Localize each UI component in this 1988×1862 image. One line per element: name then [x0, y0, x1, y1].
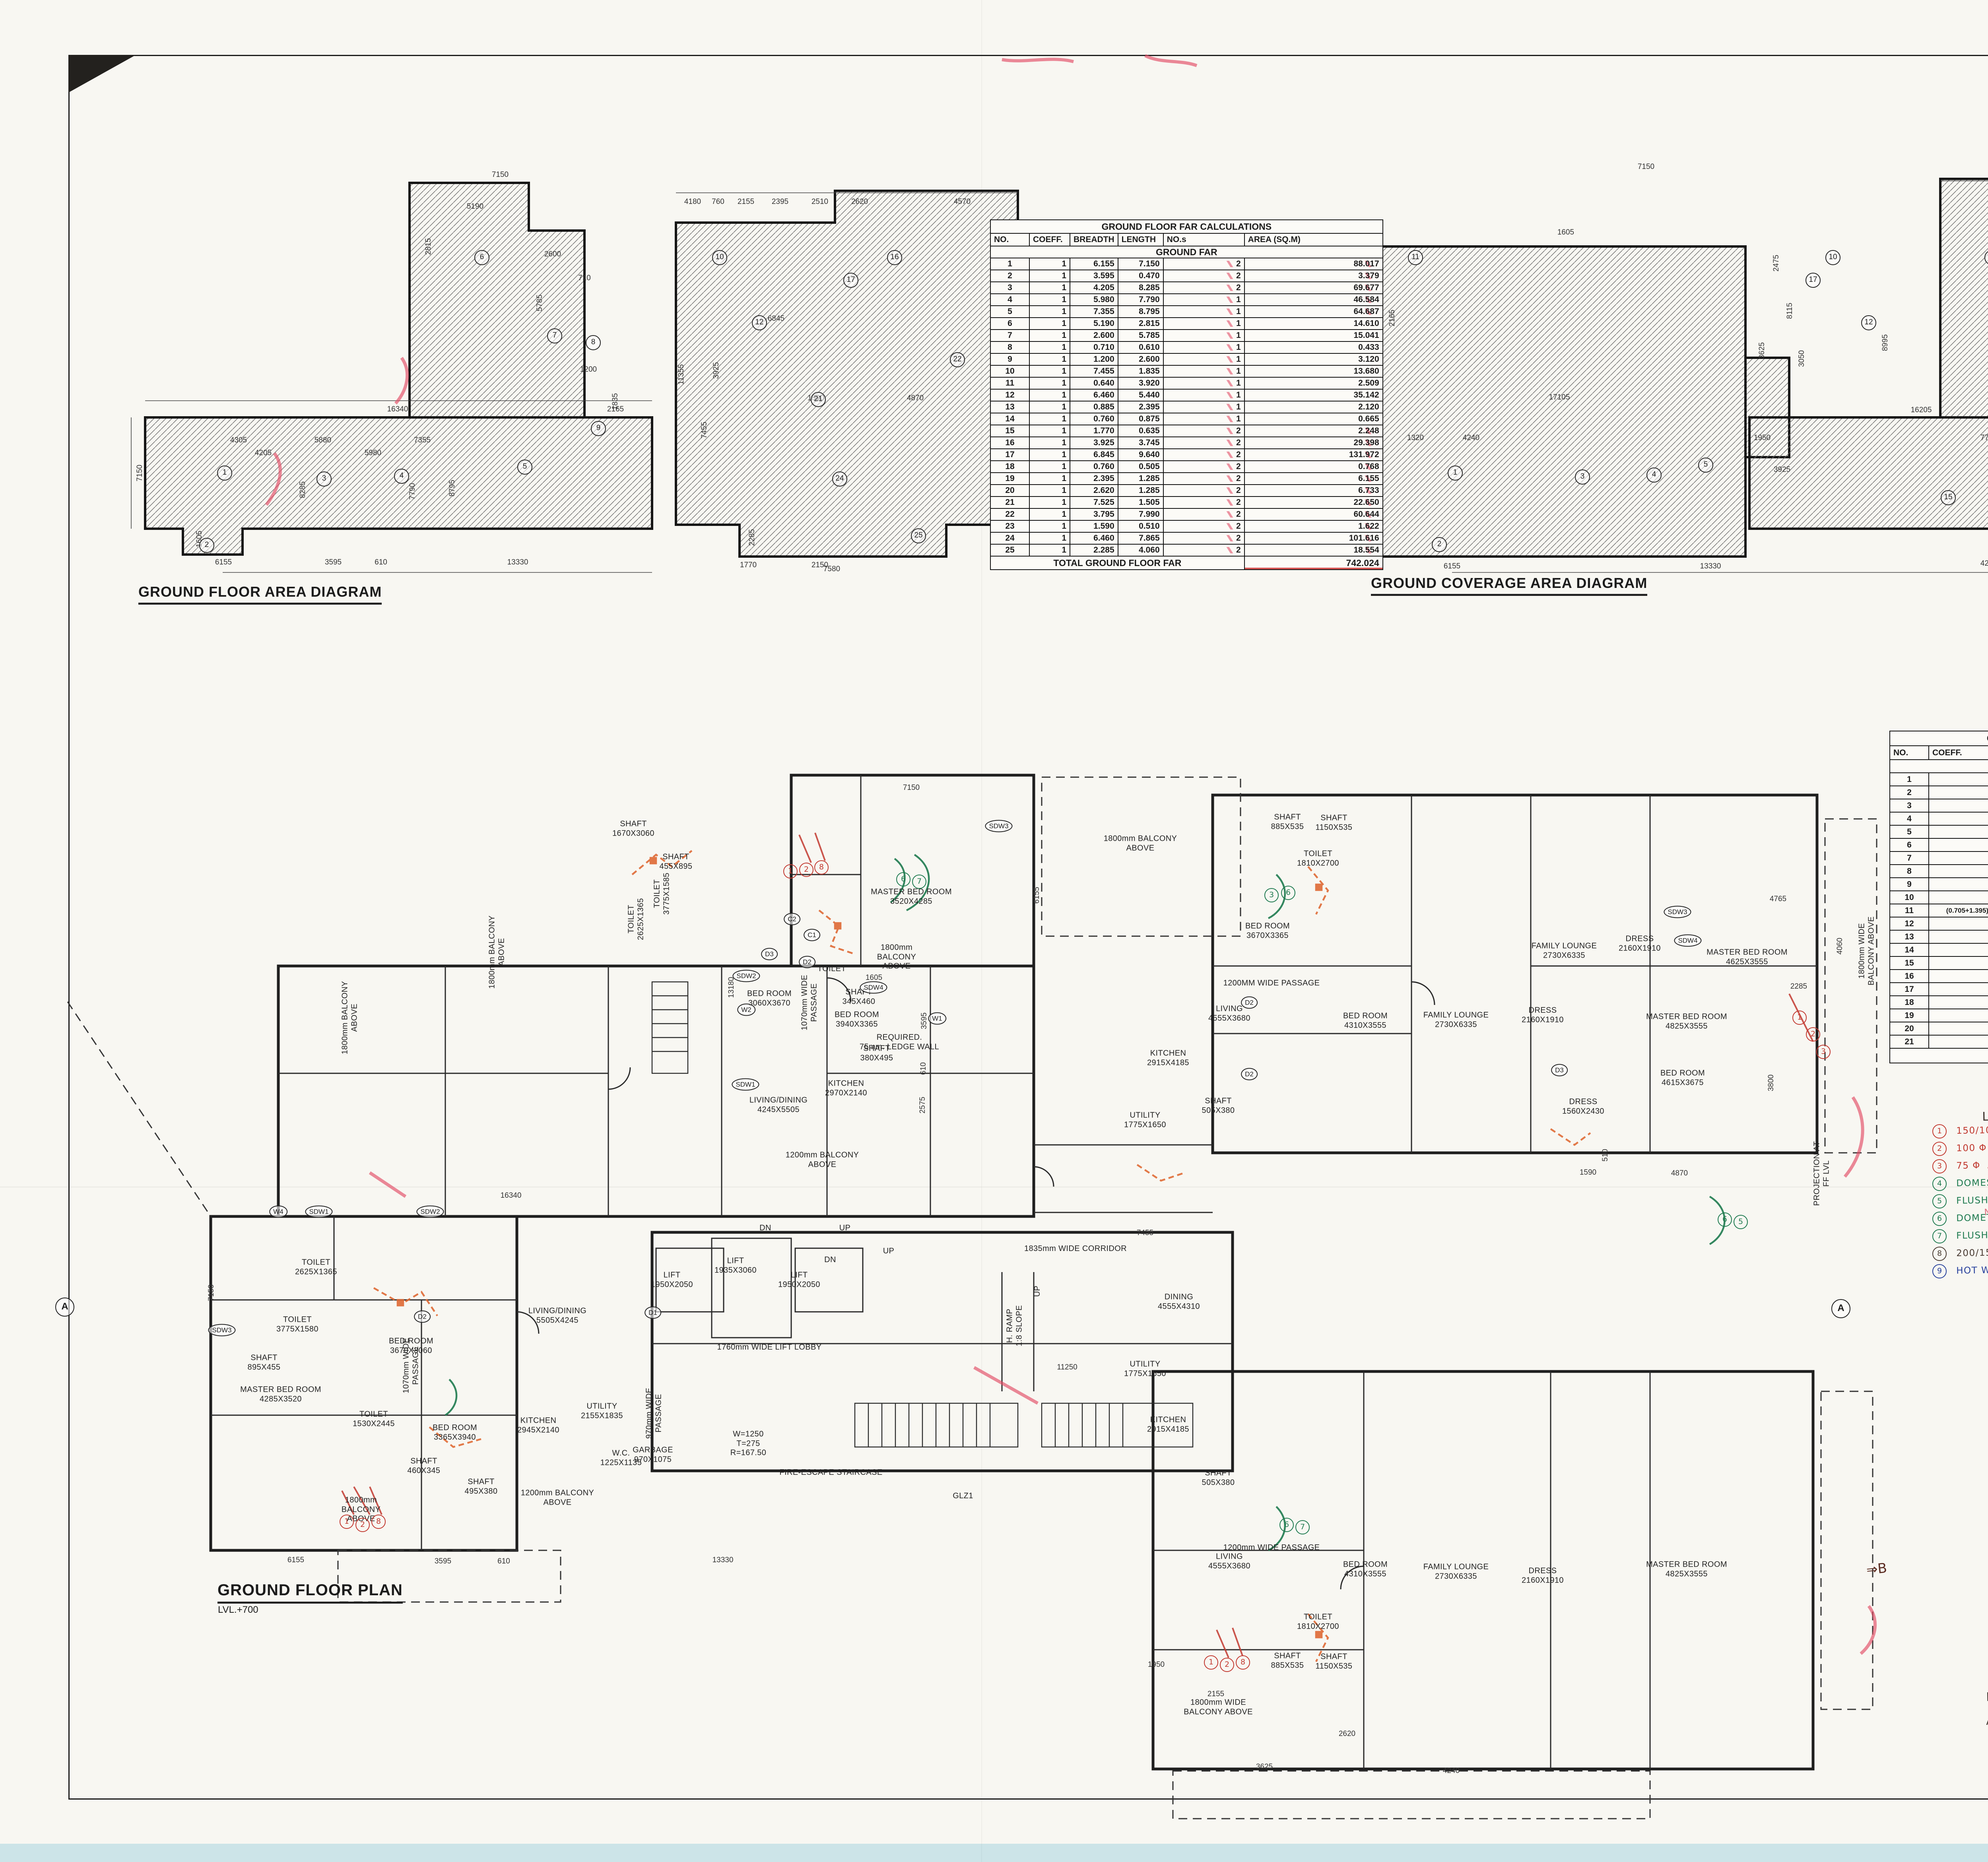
- table-row: 1017.4551.835113.680: [990, 365, 1383, 377]
- opening-tag: W2: [737, 1004, 755, 1016]
- room-label: KITCHEN 2945X2140: [517, 1416, 559, 1435]
- section-b-marker: ⇒B: [1866, 1560, 1888, 1578]
- room-label: DRESS 2160X1910: [1619, 934, 1661, 953]
- handwritten-circle-number: 8: [814, 860, 829, 875]
- room-label: FIRE-ESCAPE STAIRCASE: [779, 1468, 882, 1478]
- handwritten-circle-number: 7: [912, 875, 926, 889]
- table-row: 1216.4605.440135.142: [990, 389, 1383, 401]
- room-label: TOILET: [817, 964, 846, 974]
- coverage-dimension-label: 17105: [1549, 393, 1570, 402]
- legend-overwrite-note: Note - Ac: [1984, 1206, 1988, 1218]
- room-label: LIFT 1950X2050: [651, 1270, 693, 1289]
- room-label: 1070mm WIDE PASSAGE: [800, 975, 819, 1030]
- far-dimension-label: 2620: [851, 198, 868, 206]
- opening-tag: SDW1: [732, 1078, 759, 1091]
- room-label: KITCHEN 2915X4185: [1147, 1415, 1189, 1434]
- table-row: 810.7100.61010.433: [990, 341, 1383, 353]
- room-label: 1800mm BALCONY ABOVE: [487, 915, 506, 989]
- handwritten-circle-number: 1: [1792, 1011, 1807, 1025]
- room-label: TOILET 3775X1580: [276, 1315, 318, 1334]
- handwritten-circle-number: 1: [783, 864, 798, 879]
- room-label: 1200mm WIDE PASSAGE: [1223, 1543, 1320, 1553]
- coverage-dimension-label: 8995: [1881, 334, 1890, 351]
- room-label: SHAFT 1150X535: [1316, 1652, 1353, 1671]
- drawing-sheet: GROUND FLOOR AREA DIAGRAM GROUND COVERAG…: [0, 0, 1988, 1862]
- opening-tag: SDW4: [860, 981, 887, 994]
- room-label: 1070mm WIDE PASSAGE: [402, 1338, 420, 1393]
- handwritten-circle-number: 2: [799, 863, 813, 877]
- room-label: SHAFT 1150X535: [1316, 813, 1353, 832]
- room-label: 1800mm WIDE BALCONY ABOVE: [1857, 916, 1876, 985]
- legend-item-number: 8: [1932, 1247, 1947, 1261]
- far-zone-number: 12: [752, 315, 767, 330]
- far-dimension-label: 8285: [299, 481, 307, 498]
- table-row: 615.1902.815114.610: [990, 318, 1383, 330]
- table-row: 1110.6403.92012.509: [990, 377, 1383, 389]
- far-dimension-label: 3925: [712, 362, 721, 379]
- table-row: 911.2002.60013.120: [990, 353, 1383, 365]
- legend-item-number: 6: [1932, 1212, 1947, 1226]
- table-row: 1716.8459.6402131.972: [990, 449, 1383, 461]
- room-label: SHAFT 505X380: [1202, 1468, 1235, 1487]
- dimension-label: 2620: [1339, 1730, 1355, 1738]
- handwritten-circle-number: 7: [1295, 1520, 1310, 1534]
- table-row: 2213.7957.990260.644: [990, 508, 1383, 520]
- room-label: DRESS 1560X2430: [1562, 1097, 1604, 1116]
- opening-tag: D3: [761, 948, 778, 960]
- handwritten-circle-number: 8: [371, 1515, 386, 1529]
- table-row: 314.2058.285269.677: [990, 282, 1383, 294]
- dimension-label: 3595: [435, 1557, 451, 1566]
- opening-tag: D1: [645, 1307, 661, 1319]
- far-dimension-label: 710: [578, 274, 591, 283]
- far-dimension-label: 4205: [255, 449, 272, 458]
- room-label: BED ROOM 3365X3940: [433, 1423, 477, 1442]
- coverage-dimension-label: 3625: [1758, 342, 1767, 359]
- far-dimension-label: 7355: [414, 436, 431, 445]
- far-dimension-label: 4570: [954, 198, 971, 206]
- opening-tag: SDW2: [416, 1206, 444, 1218]
- far-dimension-label: 11355: [677, 364, 686, 384]
- table-row: 1411.7700.63522.248: [1890, 943, 1988, 956]
- floor-plan-level: LVL.+700: [218, 1604, 258, 1616]
- legend-item-number: 3: [1932, 1159, 1947, 1173]
- room-label: BED ROOM 3940X3365: [835, 1010, 879, 1029]
- far-dimension-label: 610: [375, 558, 387, 567]
- room-label: SHAFT 460X345: [408, 1457, 441, 1475]
- coverage-zone-number: 12: [1861, 315, 1876, 330]
- table-row: 810.7100.61010.433: [1890, 865, 1988, 878]
- room-label: LIVING 4555X3680: [1208, 1552, 1250, 1571]
- dimension-label: 610: [919, 1062, 928, 1075]
- far-dimension-label: 7455: [700, 422, 709, 438]
- far-zone-number: 5: [517, 460, 532, 475]
- far-dimension-label: 4870: [907, 394, 924, 403]
- legend-item-number: 7: [1932, 1229, 1947, 1243]
- room-label: TOILET 2625X1365: [295, 1258, 337, 1276]
- room-label: 1800mm BALCONY ABOVE: [340, 981, 359, 1055]
- room-label: SHAFT 455X895: [660, 852, 693, 871]
- dimension-label: 2155: [1208, 1690, 1224, 1699]
- room-label: MASTER BED ROOM 4625X3555: [1706, 948, 1788, 966]
- coverage-zone-number: 11: [1408, 250, 1423, 265]
- floor-plan-partitions: [211, 775, 1817, 1769]
- far-dimension-label: 8795: [448, 480, 457, 497]
- room-label: DN: [824, 1255, 836, 1265]
- legend-item-number: 1: [1932, 1124, 1947, 1139]
- room-label: UP: [883, 1247, 895, 1256]
- far-dimension-label: 3595: [325, 558, 342, 567]
- far-diagram-title: GROUND FLOOR AREA DIAGRAM: [138, 584, 382, 605]
- dimension-label: 610: [497, 1557, 510, 1566]
- coverage-zone-number: 3: [1575, 469, 1590, 485]
- table-row: 615.1902.815114.610: [1890, 838, 1988, 851]
- room-label: GLZ1: [953, 1492, 973, 1501]
- opening-tag: SDW2: [732, 970, 760, 982]
- coverage-dimension-label: 7790: [1980, 434, 1988, 442]
- dimension-label: 13330: [712, 1556, 734, 1565]
- room-label: SHAFT 380X495: [860, 1044, 893, 1063]
- handwritten-circle-number: 1: [340, 1515, 354, 1529]
- coverage-dimension-label: 13330: [1700, 562, 1721, 571]
- table-row: 116.1557.150288.017: [990, 258, 1383, 270]
- coverage-dimension-label: 1320: [1407, 434, 1424, 442]
- room-label: LIFT 1935X3060: [714, 1256, 757, 1275]
- opening-tag: D2: [1241, 1068, 1258, 1080]
- room-label: 1200mm BALCONY ABOVE: [786, 1150, 859, 1169]
- far-zone-number: 6: [474, 250, 489, 265]
- room-label: 1835mm WIDE CORRIDOR: [1024, 1244, 1127, 1254]
- dimension-label: 7150: [903, 784, 920, 792]
- room-label: SHAFT 895X455: [248, 1353, 281, 1372]
- room-label: 1760mm WIDE LIFT LOBBY: [717, 1343, 822, 1352]
- far-dimension-label: 6845: [768, 314, 784, 323]
- far-zone-number: 7: [547, 328, 562, 343]
- table-row: 2112.2854.060218.554: [1890, 1035, 1988, 1048]
- floor-plan-title: GROUND FLOOR PLAN: [217, 1581, 403, 1604]
- dimension-label: 6155: [287, 1556, 304, 1565]
- dimension-label: 2575: [918, 1097, 927, 1113]
- room-label: DRESS 2160X1910: [1522, 1566, 1564, 1585]
- room-label: TOILET 1810X2700: [1297, 849, 1339, 868]
- room-label: 1200mm BALCONY ABOVE: [521, 1488, 594, 1507]
- far-dimension-label: 5880: [315, 436, 331, 445]
- table-row: 1513.92512.930150.750: [1890, 956, 1988, 970]
- room-label: BED ROOM 4310X3555: [1343, 1560, 1388, 1579]
- far-zone-number: 25: [911, 528, 926, 543]
- room-label: DRESS 2160X1910: [1522, 1006, 1564, 1024]
- dimension-label: 4060: [1836, 938, 1844, 954]
- far-dimension-label: 5980: [365, 449, 381, 458]
- opening-tag: W1: [928, 1012, 946, 1025]
- room-label: KITCHEN 2915X4185: [1147, 1049, 1189, 1067]
- far-dimension-label: 7150: [136, 465, 144, 481]
- room-label: GARBAGE 970X1075: [633, 1445, 673, 1464]
- handwritten-circle-number: 6: [1279, 1518, 1294, 1532]
- table-row: 17117.1057.8652269.062: [1890, 983, 1988, 996]
- room-label: 1800mm BALCONY ABOVE: [877, 943, 916, 972]
- room-label: SHAFT 495X380: [465, 1477, 498, 1496]
- handwritten-circle-number: 2: [355, 1518, 370, 1532]
- dimension-label: 3800: [1767, 1075, 1776, 1091]
- handwritten-circle-number: 6: [896, 872, 911, 886]
- dimension-label: 1950: [1148, 1660, 1165, 1669]
- opening-tag: SDW3: [1664, 906, 1691, 918]
- opening-tag: D2: [1241, 997, 1258, 1009]
- dimension-label: 4765: [1770, 895, 1786, 904]
- room-label: 1800mm BALCONY ABOVE: [1104, 834, 1177, 853]
- coverage-dimension-label: 4240: [1463, 434, 1479, 442]
- handwritten-circle-number: 6: [1718, 1212, 1732, 1227]
- far-zone-number: 21: [811, 392, 826, 407]
- far-zone-number: 4: [394, 469, 409, 484]
- far-calculations-table: GROUND FLOOR FAR CALCULATIONSNO.COEFF.BR…: [990, 219, 1383, 570]
- legend-item-number: 9: [1932, 1264, 1947, 1278]
- room-label: W=1250 T=275 R=167.50: [730, 1430, 767, 1458]
- opening-tag: SDW1: [305, 1206, 332, 1218]
- room-label: TOILET 2625X1365: [627, 898, 645, 940]
- handwritten-circle-number: 2: [1220, 1658, 1234, 1672]
- far-dimension-label: 2510: [812, 198, 828, 206]
- far-dimension-label: 1770: [740, 561, 757, 570]
- handwritten-circle-number: 5: [1734, 1215, 1748, 1229]
- table-row: 213.5950.47023.379: [990, 270, 1383, 282]
- table-row: 11(0.705+1.395)/20.69010.725: [1890, 904, 1988, 917]
- legend-title: LEGEND.: [1982, 1109, 1988, 1124]
- far-zone-number: 17: [843, 273, 858, 288]
- coverage-dimension-label: 8115: [1786, 303, 1794, 319]
- room-label: SHAFT 885X535: [1271, 1651, 1304, 1670]
- far-dimension-label: 7150: [492, 171, 509, 179]
- handwritten-circle-number: 6: [1281, 886, 1295, 900]
- dimension-label: 7455: [1137, 1229, 1153, 1237]
- far-dimension-label: 760: [712, 198, 724, 206]
- opening-tag: SDW3: [985, 820, 1012, 832]
- handwritten-circle-number: 8: [1236, 1655, 1250, 1670]
- opening-tag: SDW3: [208, 1324, 235, 1336]
- coverage-zone-number: 10: [1825, 250, 1840, 265]
- opening-tag: SDW4: [1674, 935, 1701, 947]
- coverage-dimension-label: 1950: [1754, 434, 1771, 442]
- handwritten-circle-number: 1: [1204, 1655, 1218, 1670]
- room-label: SHAFT 1670X3060: [612, 819, 654, 838]
- room-label: FAMILY LOUNGE 2730X6335: [1423, 1011, 1489, 1029]
- dimension-label: 3595: [920, 1012, 929, 1029]
- table-row: 415.9807.790146.584: [990, 294, 1383, 306]
- legend-item-number: 5: [1932, 1194, 1947, 1208]
- dimension-label: 13180: [727, 977, 736, 998]
- far-dimension-label: 1200: [580, 365, 597, 374]
- room-label: 1800mm WIDE BALCONY ABOVE: [1184, 1698, 1253, 1717]
- table-row: 1511.7700.63522.248: [990, 425, 1383, 437]
- table-row: 2416.4607.8652101.616: [990, 532, 1383, 544]
- room-label: TOILET 1530X2445: [353, 1410, 395, 1428]
- table-row: 1810.7600.50520.768: [990, 461, 1383, 473]
- room-label: 1200MM WIDE PASSAGE: [1223, 979, 1320, 988]
- legend-item-number: 4: [1932, 1177, 1947, 1191]
- room-label: MASTER BED ROOM 4285X3520: [240, 1385, 321, 1404]
- room-label: PROJECTION AT FF LVL: [1812, 1141, 1831, 1206]
- room-label: UTILITY 2155X1835: [581, 1402, 623, 1420]
- table-row: 517.3558.795164.687: [990, 306, 1383, 318]
- far-zone-number: 22: [950, 352, 965, 367]
- far-zone-number: 10: [712, 250, 727, 265]
- section-marker: A: [1831, 1299, 1850, 1318]
- table-row: 2012.6201.28526.733: [990, 485, 1383, 497]
- room-label: DINING 4555X4310: [1158, 1292, 1200, 1311]
- coverage-zone-number: 17: [1806, 273, 1821, 288]
- table-row: 2311.5900.51021.622: [990, 520, 1383, 532]
- coverage-dimension-label: 4240: [1980, 559, 1988, 568]
- room-label: TOILET 1810X2700: [1297, 1612, 1339, 1631]
- coverage-zone-number: 15: [1941, 490, 1956, 505]
- handwritten-circle-number: 3: [1264, 888, 1279, 902]
- table-row: 1912.3951.28526.155: [990, 473, 1383, 485]
- coverage-zone-number: 1: [1448, 465, 1463, 481]
- handwritten-circle-number: 3: [1816, 1045, 1831, 1059]
- coverage-dimension-label: 1605: [1557, 228, 1574, 237]
- floor-plan-walls: [211, 775, 1817, 1769]
- dimension-label: 11250: [1057, 1363, 1077, 1372]
- dimension-label: 6155: [1033, 887, 1041, 904]
- coverage-dimension-label: 7150: [1638, 163, 1654, 171]
- far-dimension-label: 5785: [536, 295, 544, 311]
- coverage-zone-number: 5: [1698, 458, 1713, 473]
- table-row: 911.2002.60013.120: [1890, 878, 1988, 891]
- far-dimension-label: 7790: [408, 483, 417, 500]
- room-label: DN: [759, 1224, 771, 1233]
- table-row: 1613.9253.745229.398: [990, 437, 1383, 449]
- coverage-diagram-shapes: [1376, 179, 1988, 557]
- room-label: SHAFT 505X380: [1202, 1096, 1235, 1115]
- table-row: 1410.7600.87510.665: [990, 413, 1383, 425]
- room-label: MASTER BED ROOM 4825X3555: [1646, 1012, 1727, 1031]
- table-row: 16116.2058.9951145.764: [1890, 970, 1988, 983]
- far-dimension-label: 2150: [812, 561, 828, 570]
- coverage-dimension-label: 2475: [1772, 255, 1781, 272]
- dimension-label: 510: [1601, 1149, 1610, 1162]
- room-label: UTILITY 1775X1650: [1124, 1111, 1166, 1129]
- coverage-dimension-label: 16205: [1911, 406, 1932, 415]
- table-row: 213.5950.47023.379: [1890, 786, 1988, 799]
- far-dimension-label: 16340: [387, 405, 408, 414]
- room-label: BED ROOM 4615X3675: [1660, 1069, 1705, 1087]
- table-row: 1211.9509.815119.139: [1890, 917, 1988, 930]
- table-row: 517.3558.795164.687: [1890, 825, 1988, 838]
- opening-tag: C1: [804, 929, 820, 941]
- dimension-label: 7150: [207, 1284, 216, 1301]
- table-row: 2117.5251.505222.650: [990, 497, 1383, 508]
- room-label: FAMILY LOUNGE 2730X6335: [1532, 941, 1597, 960]
- far-zone-number: 8: [586, 335, 601, 350]
- room-label: SHAFT 885X535: [1271, 813, 1304, 831]
- room-label: LIFT 1950X2050: [778, 1270, 820, 1289]
- coverage-diagram-title: GROUND COVERAGE AREA DIAGRAM: [1371, 575, 1647, 596]
- table-row: 1310.8250.57010.470: [1890, 930, 1988, 943]
- far-zone-number: 1: [217, 465, 232, 481]
- room-label: UTILITY 1775X1650: [1124, 1360, 1166, 1378]
- dimension-label: 4240: [1443, 1767, 1460, 1775]
- floor-plan-balconies: [68, 777, 1877, 1819]
- room-label: BED ROOM 3060X3670: [747, 989, 792, 1008]
- coverage-dimension-label: 6155: [1444, 562, 1460, 571]
- table-row: 2512.2854.060218.554: [990, 544, 1383, 556]
- table-row: 1310.8852.39512.120: [990, 401, 1383, 413]
- room-label: UP: [839, 1224, 851, 1233]
- opening-tag: C2: [784, 913, 800, 925]
- far-dimension-label: 6155: [215, 558, 232, 567]
- coverage-dimension-label: 3925: [1774, 465, 1790, 474]
- far-dimension-label: 4305: [230, 436, 247, 445]
- opening-tag: W4: [269, 1206, 287, 1218]
- opening-tag: D2: [799, 956, 815, 968]
- dimension-label: 1590: [1580, 1168, 1596, 1177]
- far-zone-number: 2: [199, 538, 214, 553]
- table-row: 116.1557.150288.017: [1890, 773, 1988, 786]
- table-row: 1917.5251.800227.090: [1890, 1009, 1988, 1022]
- room-label: FAMILY LOUNGE 2730X6335: [1423, 1562, 1489, 1581]
- far-dimension-label: 2395: [772, 198, 788, 206]
- far-zone-number: 9: [591, 421, 606, 436]
- room-label: KITCHEN 2970X2140: [825, 1079, 867, 1098]
- far-zone-number: 16: [887, 250, 902, 265]
- table-row: 2017.7900.990215.424: [1890, 1022, 1988, 1035]
- table-row: 712.6005.785115.041: [990, 330, 1383, 341]
- dimension-label: 3625: [1256, 1763, 1273, 1771]
- far-dimension-label: 2815: [424, 238, 433, 255]
- far-zone-number: 3: [316, 471, 332, 487]
- room-label: UP: [1033, 1286, 1043, 1297]
- far-zone-number: 24: [832, 471, 847, 487]
- room-label: LIVING/DINING 5505X4245: [528, 1306, 586, 1325]
- room-label: MASTER BED ROOM 4825X3555: [1646, 1560, 1727, 1579]
- dimension-label: 2285: [1790, 982, 1807, 991]
- table-row: 1810.7600.50520.768: [1890, 996, 1988, 1009]
- room-label: 970mm WIDE PASSAGE: [645, 1388, 663, 1439]
- far-dimension-label: 2285: [748, 529, 757, 546]
- coverage-zone-number: 4: [1646, 467, 1662, 483]
- section-marker: A: [55, 1298, 74, 1317]
- note-label: NOTE : -: [1986, 1689, 1988, 1704]
- far-dimension-label: 2155: [738, 198, 754, 206]
- table-row: 415.9807.790146.584: [1890, 812, 1988, 825]
- coverage-dimension-label: 3050: [1798, 350, 1806, 367]
- room-label: TOILET 3775X1585: [652, 873, 671, 915]
- legend-item-number: 2: [1932, 1142, 1947, 1156]
- far-dimension-label: 2600: [544, 250, 561, 259]
- plumbing-annotations: [374, 851, 1590, 1662]
- far-dimension-label: 13330: [507, 558, 528, 567]
- far-dimension-label: 1835: [611, 393, 620, 410]
- room-label: BED ROOM 3670X3365: [1245, 921, 1290, 940]
- opening-tag: D3: [1551, 1064, 1568, 1076]
- far-dimension-label: 5190: [467, 202, 483, 211]
- coverage-calculations-table: GROUND COVERAGE AREA CALCULATIONSNO.COEF…: [1889, 731, 1988, 1063]
- coverage-zone-number: 2: [1432, 537, 1447, 552]
- room-label: LIVING/DINING 4245X5505: [749, 1096, 808, 1114]
- room-label: H. RAMP 1:8 SLOPE: [1005, 1305, 1024, 1346]
- table-row: 1011.8351.83513.367: [1890, 891, 1988, 904]
- dimension-label: 4870: [1671, 1169, 1688, 1178]
- coverage-dimension-label: 2165: [1388, 310, 1397, 326]
- opening-tag: D2: [414, 1311, 431, 1323]
- table-row: 314.2058.285269.677: [1890, 799, 1988, 812]
- room-label: MASTER BED ROOM 3520X4285: [871, 887, 952, 906]
- handwritten-circle-number: 2: [1806, 1027, 1820, 1042]
- table-row: 712.6005.785115.041: [1890, 851, 1988, 865]
- room-label: BED ROOM 4310X3555: [1343, 1011, 1388, 1030]
- dimension-label: 16340: [501, 1191, 522, 1200]
